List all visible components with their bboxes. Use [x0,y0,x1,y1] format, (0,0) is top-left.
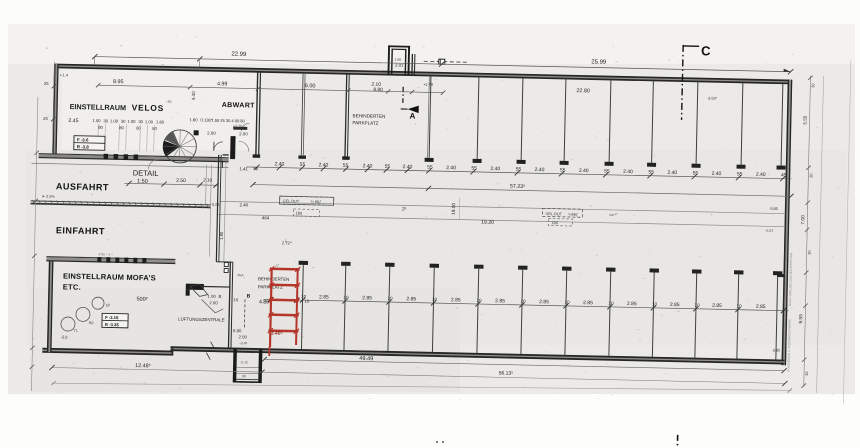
svg-text:19.00: 19.00 [451,203,457,215]
svg-text:55: 55 [385,164,391,170]
svg-text:2.85: 2.85 [451,297,461,303]
svg-text:80: 80 [136,126,141,131]
svg-text:○84: ○84 [166,100,172,104]
svg-text:22.99: 22.99 [231,52,247,58]
svg-text:BEHINDERTEN: BEHINDERTEN [258,276,289,282]
svg-text:R -3.35: R -3.35 [105,322,120,327]
svg-text:30: 30 [138,119,143,124]
svg-text:2.40: 2.40 [535,167,545,173]
svg-text:ETC.: ETC. [63,282,81,291]
svg-text:F -3.6: F -3.6 [77,137,89,142]
svg-text:2.40: 2.40 [403,164,413,170]
svg-text:2.40: 2.40 [667,170,677,176]
svg-text:EINSTELLRAUM: EINSTELLRAUM [70,102,126,112]
svg-text:1.00: 1.00 [208,294,217,299]
svg-text:45: 45 [781,172,787,178]
svg-text:80: 80 [152,126,157,131]
svg-text:4.99: 4.99 [217,81,228,87]
svg-text:-3.85: -3.85 [771,348,780,352]
svg-text:DETAIL: DETAIL [133,168,159,178]
svg-text:10: 10 [233,297,238,302]
svg-text:9.55: 9.55 [798,314,804,324]
svg-text:18: 18 [105,303,109,307]
svg-text:56: 56 [253,166,258,171]
svg-text:ca.⁴⁷: ca.⁴⁷ [609,213,618,217]
svg-text:1.60: 1.60 [156,119,165,124]
svg-text:1.60: 1.60 [189,117,198,122]
svg-text:22.80: 22.80 [576,88,590,94]
svg-text:80: 80 [119,125,124,130]
svg-text:30: 30 [808,250,812,254]
svg-text:-3.4⁵: -3.4⁵ [240,341,248,345]
svg-text:1.80: 1.80 [219,231,224,240]
svg-text:2.40: 2.40 [579,168,589,174]
svg-text:2.85: 2.85 [756,304,766,310]
svg-text:25: 25 [43,116,49,121]
svg-text:55: 55 [648,169,654,175]
svg-text:2.85: 2.85 [627,301,637,307]
svg-text:-5.12: -5.12 [240,360,248,364]
svg-text:2.00: 2.00 [239,334,248,339]
svg-text:10: 10 [432,297,438,302]
svg-text:1.41: 1.41 [239,166,248,171]
svg-text:30: 30 [811,83,815,87]
svg-text:10: 10 [736,303,742,308]
svg-text:VELOS: VELOS [132,102,165,113]
svg-text:55: 55 [427,165,433,171]
svg-text:LÜFTUNGSZENTRALE: LÜFTUNGSZENTRALE [178,316,225,322]
svg-text:500²: 500² [136,297,147,303]
svg-text:2.72⁴: 2.72⁴ [282,240,292,245]
svg-text:-3.25: -3.25 [211,203,220,207]
svg-text:℮2.70: ℮2.70 [233,124,242,128]
svg-text:2.85: 2.85 [712,303,722,309]
svg-text:2.00: 2.00 [209,300,218,305]
svg-text:1:50: 1:50 [137,179,148,185]
svg-text:2.85: 2.85 [495,298,505,304]
svg-text:3*30 ÷-1 *: 3*30 ÷-1 * [98,252,113,256]
svg-text:35: 35 [805,371,809,375]
svg-text:8.80: 8.80 [373,87,383,93]
svg-text:10: 10 [304,299,310,304]
svg-text:T1: T1 [74,329,78,333]
svg-text:R -3.8: R -3.8 [77,144,90,149]
svg-text:2.40: 2.40 [756,172,766,178]
svg-text:6.00: 6.00 [305,83,316,89]
svg-text:B.: B. [219,294,223,299]
svg-text:C: C [701,43,711,58]
svg-text:5.55: 5.55 [802,115,807,124]
svg-text:55: 55 [300,162,306,168]
svg-text:EINFAHRT: EINFAHRT [56,225,105,236]
svg-text:2.40: 2.40 [240,202,249,207]
svg-text:B: B [247,293,251,299]
svg-text:49.49: 49.49 [359,356,373,362]
svg-text:30: 30 [103,118,108,123]
svg-text:AUSFAHRT: AUSFAHRT [56,181,109,192]
svg-text:1.50: 1.50 [394,58,401,62]
svg-text:2.85: 2.85 [406,296,416,302]
svg-text:0.90: 0.90 [233,328,242,333]
svg-text:2.10: 2.10 [203,177,212,182]
svg-text:2.85: 2.85 [362,295,372,301]
svg-text:4NA: 4NA [237,273,244,277]
svg-text:2.40: 2.40 [623,169,633,175]
svg-text:2.85: 2.85 [539,299,549,305]
svg-text:1.00: 1.00 [127,119,136,124]
svg-text:2.85: 2.85 [319,294,329,300]
svg-text:ABWART: ABWART [222,102,256,110]
svg-text:BEHINDERTEN: BEHINDERTEN [353,113,386,119]
svg-text:55: 55 [471,166,477,172]
svg-text:10: 10 [520,299,526,304]
svg-text:GEL.DUT: GEL.DUT [283,199,300,203]
svg-text:2.45: 2.45 [68,118,78,124]
svg-text:55: 55 [516,167,522,173]
svg-text:2.00: 2.00 [207,131,216,136]
svg-text:PARKPLATZ: PARKPLATZ [352,120,378,126]
svg-text:2.40: 2.40 [446,165,456,171]
svg-text:1.00: 1.00 [92,118,101,123]
svg-text:•1.79: •1.79 [424,82,434,87]
svg-text:➤ 3.3%: ➤ 3.3% [42,194,56,198]
svg-text:2.85: 2.85 [583,300,593,306]
svg-text:25.99: 25.99 [591,59,607,65]
svg-text:7.00: 7.00 [800,215,806,225]
svg-text:56.13⁵: 56.13⁵ [499,370,514,376]
svg-text:180: 180 [551,220,559,225]
svg-text:1.00: 1.00 [110,118,119,123]
svg-text:2.40: 2.40 [363,163,373,169]
svg-text:1.00: 1.00 [145,119,154,124]
svg-text:180: 180 [295,210,303,215]
svg-text:55: 55 [604,169,610,175]
svg-text:¼66ƒ: ¼66ƒ [568,212,578,216]
svg-text:10: 10 [387,296,393,301]
svg-text:2.40: 2.40 [712,171,722,177]
svg-text:80: 80 [98,125,103,130]
svg-text:10: 10 [343,295,349,300]
svg-text:19.20: 19.20 [481,220,494,226]
svg-text:55: 55 [737,171,743,177]
svg-text:25: 25 [44,81,50,86]
svg-text:464: 464 [262,215,270,220]
svg-text:55: 55 [560,168,566,174]
svg-text:10: 10 [694,303,700,308]
svg-text:¼ 66ƒ: ¼ 66ƒ [311,200,322,204]
svg-text:3.40⁵: 3.40⁵ [271,330,284,336]
svg-text:F -3.15: F -3.15 [105,315,119,320]
svg-text:△⁵: △⁵ [275,263,280,267]
svg-text:-3.85: -3.85 [769,207,778,211]
svg-text:30: 30 [809,173,813,177]
svg-text:-3.8: -3.8 [61,334,69,339]
svg-text:55: 55 [343,163,349,169]
svg-text:2.40: 2.40 [275,161,285,167]
svg-text:2.50: 2.50 [176,178,186,184]
svg-text:A: A [409,111,415,120]
svg-text:55: 55 [693,170,699,176]
svg-text:57.23⁵: 57.23⁵ [510,184,525,190]
svg-text:30: 30 [121,119,126,124]
svg-text:-3.59°: -3.59° [707,96,718,100]
svg-text:10: 10 [652,302,658,307]
svg-text:2.85: 2.85 [670,302,680,308]
svg-text:10: 10 [608,301,614,306]
svg-text:2.40: 2.40 [319,162,329,168]
svg-text:90: 90 [242,374,246,378]
svg-text:-3.57: -3.57 [765,229,773,233]
svg-text:8.95: 8.95 [113,79,124,85]
svg-text:12.48⁵: 12.48⁵ [135,363,151,369]
svg-text:10: 10 [564,300,570,305]
svg-text:2.10: 2.10 [372,82,382,88]
svg-text:2.00: 2.00 [239,131,248,136]
svg-text:2.40: 2.40 [490,166,500,172]
svg-text:4.40: 4.40 [191,91,196,100]
svg-text:•-1.4: •-1.4 [60,72,69,77]
svg-text:GEL.DUT: GEL.DUT [545,212,562,216]
svg-text:10: 10 [476,298,482,303]
svg-text:B2: B2 [89,321,94,325]
